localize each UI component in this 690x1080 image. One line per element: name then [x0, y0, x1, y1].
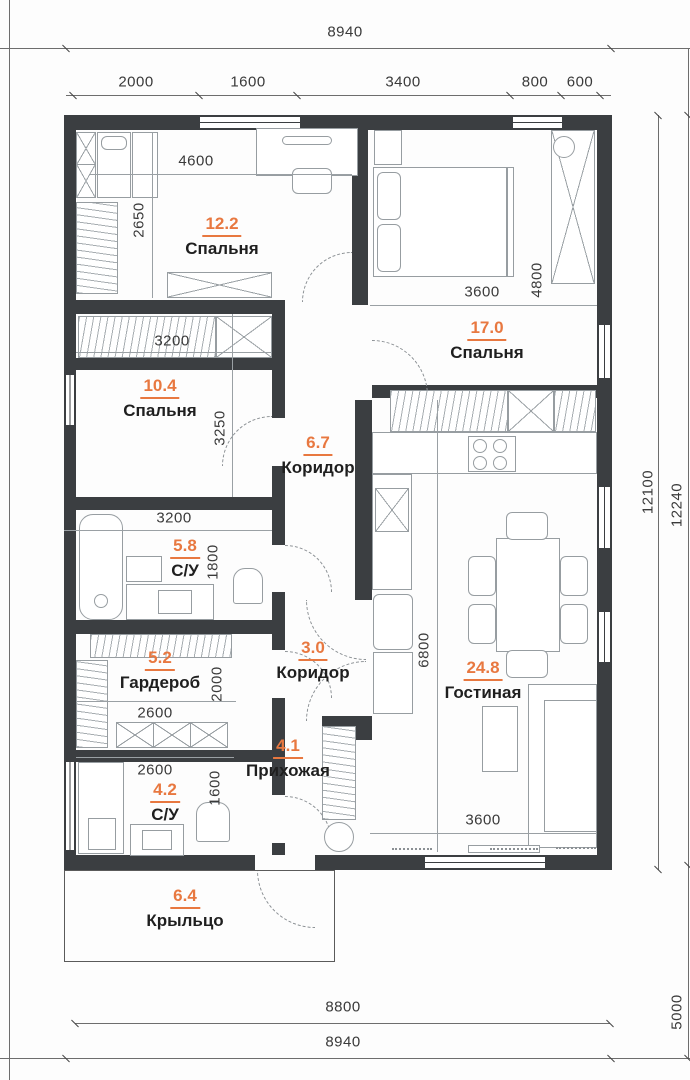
room-label-porch: 6.4 Крыльцо — [146, 886, 223, 930]
heater — [392, 848, 432, 850]
pouf — [324, 822, 354, 852]
chair — [292, 168, 332, 194]
dim-chain-1600: 1600 — [230, 74, 265, 91]
dim-living-w: 3600 — [465, 812, 500, 829]
room-name: С/У — [150, 805, 180, 825]
dim-bedroom3-h: 3250 — [212, 410, 229, 445]
dining-table — [496, 538, 560, 652]
dim-line — [76, 701, 236, 702]
room-label-bath2: 4.2 С/У — [150, 780, 180, 824]
dim-line — [64, 530, 272, 531]
bench — [507, 167, 514, 277]
dim-bottom-total: 8940 — [325, 1034, 360, 1051]
wall-kitchen-left — [355, 400, 372, 600]
dim-line — [76, 352, 272, 353]
window — [425, 855, 545, 870]
dim-line — [0, 48, 690, 49]
room-label-wardrobe: 5.2 Гардероб — [120, 648, 200, 692]
dim-chain-3400: 3400 — [385, 74, 420, 91]
chair — [560, 604, 588, 644]
heater — [490, 848, 538, 850]
burner — [493, 439, 507, 453]
mirror — [553, 136, 575, 158]
pillow — [377, 224, 401, 272]
dim-top-total: 8940 — [327, 24, 362, 41]
closet — [116, 722, 154, 748]
floor-plan: 8940 2000 1600 3400 800 600 8800 8940 12… — [0, 0, 690, 1080]
room-name: С/У — [170, 561, 200, 581]
dresser — [374, 130, 402, 165]
dim-line — [75, 1023, 610, 1024]
chair — [468, 604, 496, 644]
closet — [508, 390, 554, 432]
dim-chain-600: 600 — [567, 74, 594, 91]
window — [597, 325, 612, 378]
wall-bedroom1-bottom — [64, 300, 285, 314]
dresser — [167, 272, 272, 298]
dim-bath1-w: 3200 — [156, 510, 191, 527]
closet — [153, 722, 191, 748]
drain — [94, 594, 108, 608]
wall-bath1-top — [64, 497, 285, 510]
window — [64, 375, 76, 425]
pillow — [101, 136, 127, 150]
room-area: 12.2 — [202, 214, 241, 237]
closet — [190, 722, 228, 748]
door-arc-bedroom2 — [372, 340, 428, 396]
dim-bedroom2-w: 3600 — [464, 284, 499, 301]
room-name: Коридор — [281, 458, 354, 478]
window — [64, 758, 76, 850]
room-name: Спальня — [123, 401, 196, 421]
burner — [473, 456, 487, 470]
room-label-hallway: 4.1 Прихожая — [246, 736, 330, 780]
room-label-corridor1: 6.7 Коридор — [281, 433, 354, 477]
dim-bath1-h: 1800 — [205, 544, 222, 579]
cabinet — [373, 652, 413, 714]
dim-bedroom1-w: 4600 — [178, 153, 213, 170]
entrance-door-opening — [255, 855, 315, 870]
wardrobe — [390, 390, 508, 432]
dim-line — [90, 174, 352, 175]
window — [513, 115, 562, 130]
room-area: 17.0 — [467, 318, 506, 341]
dim-living-h: 6800 — [416, 632, 433, 667]
room-area: 5.8 — [170, 536, 200, 559]
site-line-left — [9, 0, 10, 1080]
dim-line — [370, 833, 597, 834]
toilet — [196, 802, 230, 842]
wall-left-block — [272, 843, 285, 855]
washing-machine — [88, 818, 116, 850]
toilet — [233, 568, 263, 604]
wall-left-block — [272, 300, 285, 418]
dim-right-total: 12240 — [669, 483, 686, 527]
dim-wardrobe-h: 2000 — [209, 666, 226, 701]
room-name: Прихожая — [246, 761, 330, 781]
dim-chain-800: 800 — [522, 74, 549, 91]
dim-bottom-inner: 8800 — [325, 999, 360, 1016]
dim-right-side: 5000 — [669, 994, 686, 1029]
room-label-living: 24.8 Гостиная — [445, 658, 522, 702]
room-label-corridor2: 3.0 Коридор — [276, 638, 349, 682]
room-area: 10.4 — [140, 376, 179, 399]
room-area: 6.4 — [170, 886, 200, 909]
dim-bath2-h: 1600 — [207, 770, 224, 805]
heater — [556, 847, 596, 849]
dim-bedroom1-h: 2650 — [131, 202, 148, 237]
wall-bath1-bottom — [64, 620, 285, 634]
chair — [560, 556, 588, 596]
window — [597, 612, 612, 662]
room-name: Спальня — [185, 239, 258, 259]
sink — [158, 590, 192, 614]
closet — [76, 132, 96, 165]
dim-closet-w: 3200 — [154, 333, 189, 350]
dim-line — [370, 305, 597, 306]
dim-wardrobe-w: 2600 — [137, 705, 172, 722]
room-name: Спальня — [450, 343, 523, 363]
dim-line — [437, 400, 438, 852]
room-name: Крыльцо — [146, 911, 223, 931]
wardrobe — [76, 202, 118, 294]
dim-line — [152, 132, 153, 298]
room-area: 4.1 — [273, 736, 303, 759]
fridge — [373, 594, 413, 650]
room-label-bedroom2: 17.0 Спальня — [450, 318, 523, 362]
chair — [506, 512, 548, 540]
dim-bath2-w: 2600 — [137, 762, 172, 779]
wall-closet-bottom — [64, 358, 285, 370]
closet — [76, 164, 96, 198]
cabinet — [132, 132, 158, 198]
dim-line — [0, 1058, 690, 1059]
pillow — [377, 172, 401, 220]
burner — [473, 439, 487, 453]
sofa-seat — [544, 700, 597, 832]
dim-line — [76, 757, 234, 758]
dim-right-inner: 12100 — [640, 470, 657, 514]
room-label-bedroom3: 10.4 Спальня — [123, 376, 196, 420]
coffee-table — [482, 706, 518, 772]
dim-chain-2000: 2000 — [118, 74, 153, 91]
room-area: 24.8 — [463, 658, 502, 681]
shelf — [126, 556, 162, 582]
room-area: 3.0 — [298, 638, 328, 661]
wardrobe — [554, 390, 596, 432]
window — [597, 487, 612, 548]
kitchen-sink — [375, 488, 409, 532]
room-area: 5.2 — [145, 648, 175, 671]
sink — [142, 830, 172, 850]
door-arc-bath1 — [285, 545, 332, 592]
room-label-bedroom1: 12.2 Спальня — [185, 214, 258, 258]
dim-line — [658, 115, 659, 870]
clothes-rail — [76, 660, 108, 748]
room-name: Гардероб — [120, 673, 200, 693]
dim-line — [688, 48, 689, 1058]
chair — [468, 556, 496, 596]
burner — [493, 456, 507, 470]
dim-bedroom2-h: 4800 — [529, 262, 546, 297]
room-name: Гостиная — [445, 683, 522, 703]
dim-line — [232, 314, 233, 497]
door-arc-bedroom1 — [302, 252, 352, 302]
door-arc-bedroom3 — [222, 416, 272, 466]
room-name: Коридор — [276, 663, 349, 683]
room-area: 6.7 — [303, 433, 333, 456]
dim-line — [66, 95, 611, 96]
room-area: 4.2 — [150, 780, 180, 803]
monitor — [282, 136, 332, 145]
room-label-bath1: 5.8 С/У — [170, 536, 200, 580]
